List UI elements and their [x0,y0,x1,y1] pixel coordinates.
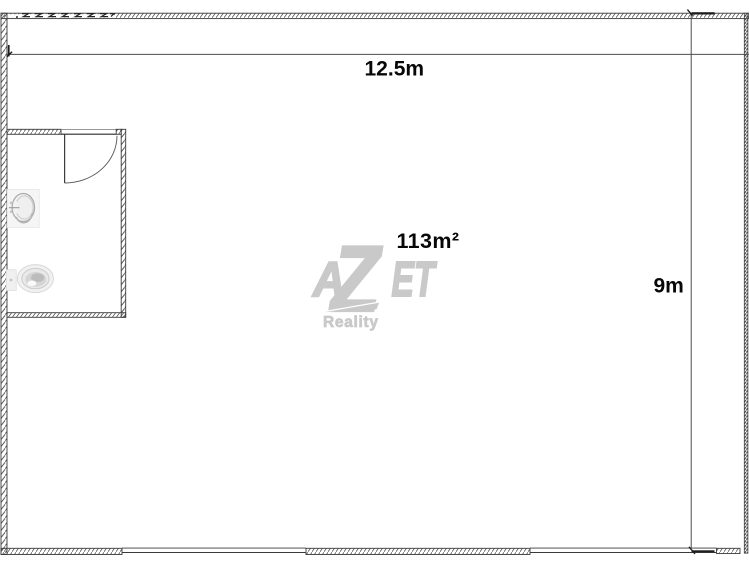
svg-text:113m²: 113m² [397,229,460,253]
svg-text:9m: 9m [654,274,684,297]
svg-text:12.5m: 12.5m [365,58,425,81]
svg-text:Reality: Reality [323,314,379,331]
svg-text:ET: ET [392,252,438,307]
